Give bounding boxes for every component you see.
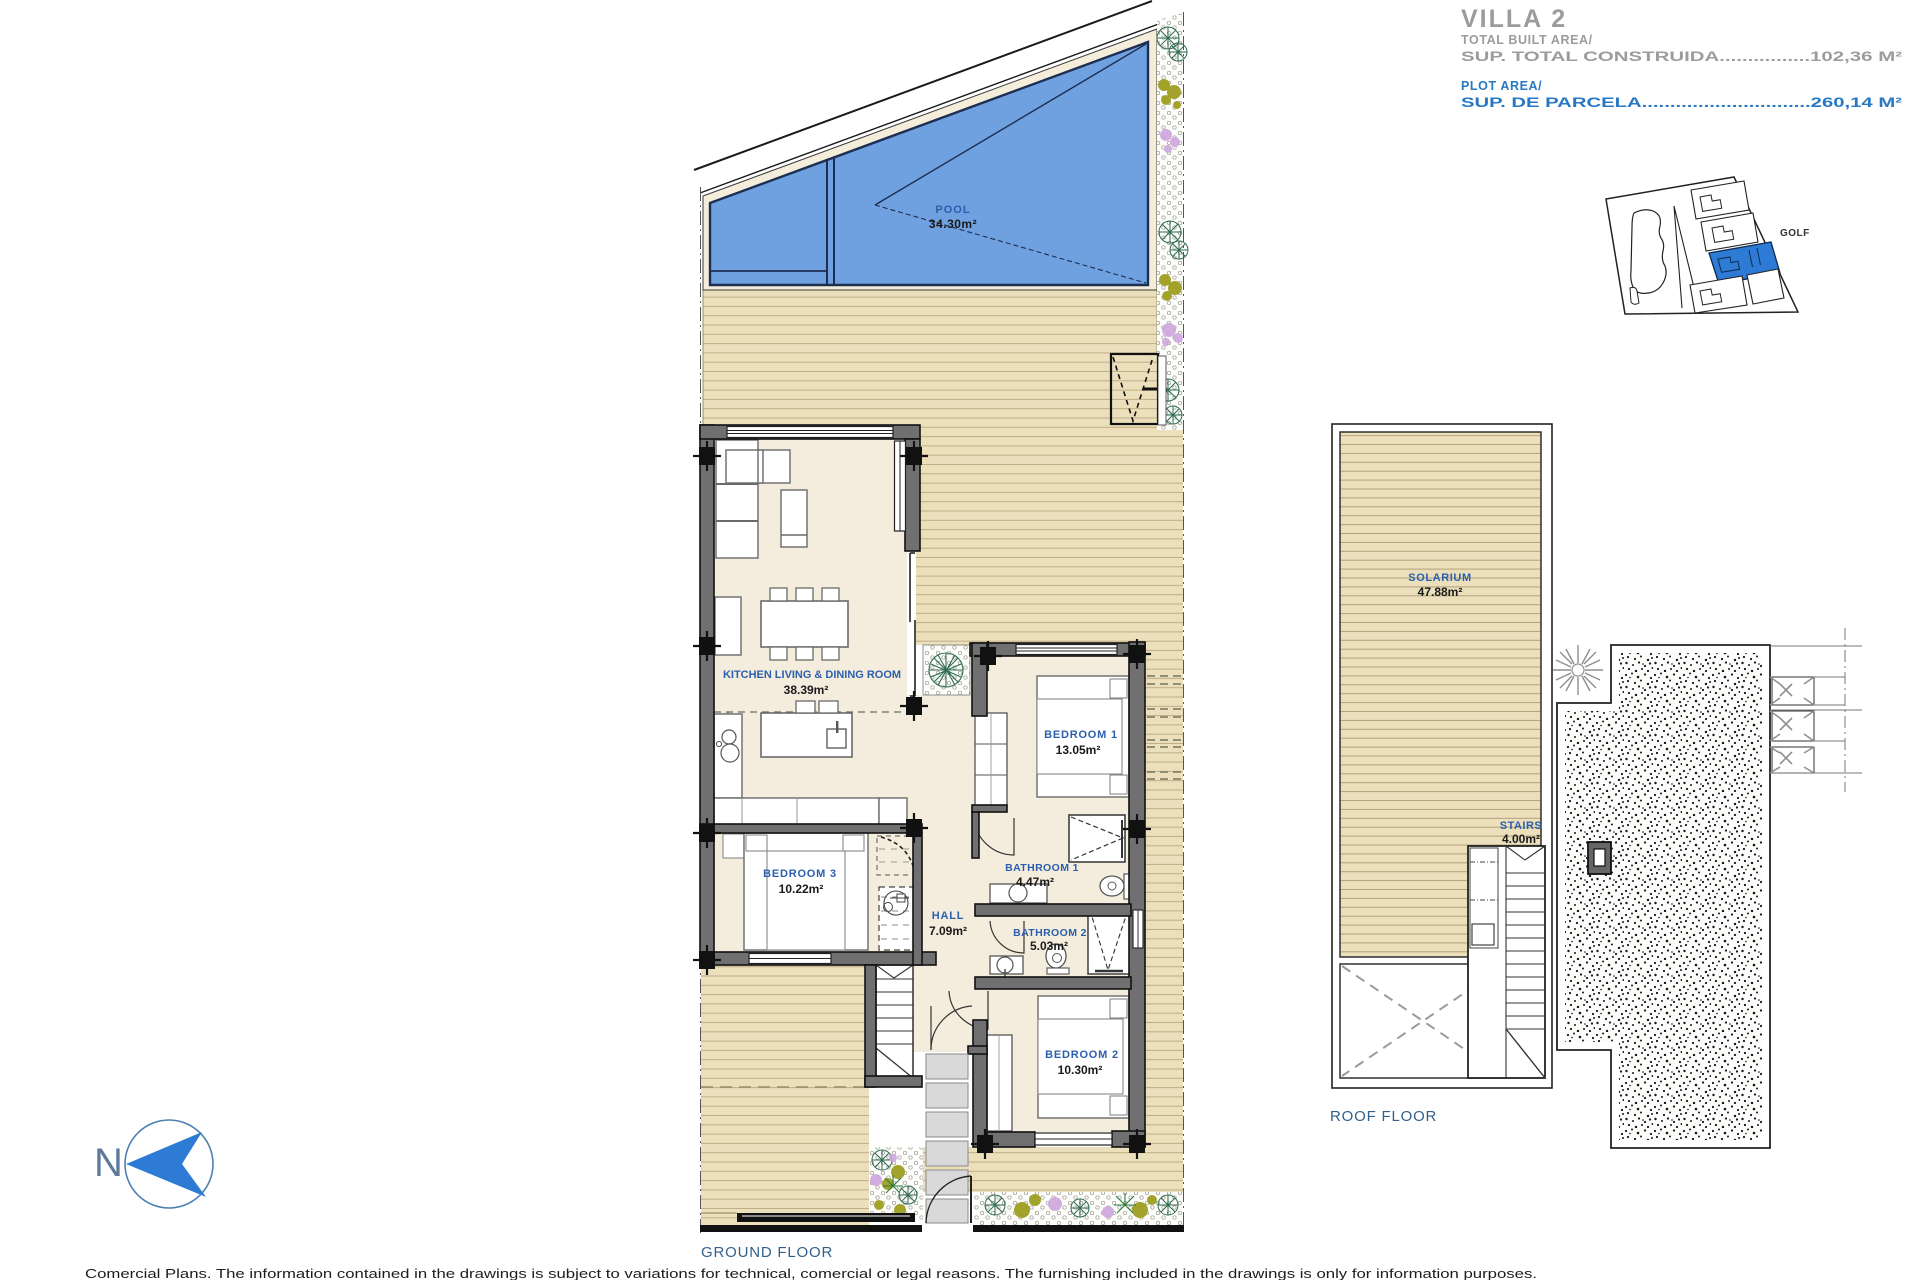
- svg-text:SOLARIUM: SOLARIUM: [1408, 572, 1471, 584]
- svg-text:Comercial Plans. The inform: Comercial Plans. The information contain…: [85, 1266, 1537, 1280]
- svg-text:10.30m²: 10.30m²: [1058, 1063, 1103, 1077]
- svg-text:GOLF: GOLF: [1780, 228, 1810, 239]
- svg-text:N: N: [94, 1141, 123, 1185]
- svg-text:TOTAL BUILT AREA/: TOTAL BUILT AREA/: [1461, 33, 1593, 47]
- svg-text:KITCHEN LIVING & DINING R: KITCHEN LIVING & DINING ROOM: [723, 669, 901, 681]
- svg-text:BATHROOM 1: BATHROOM 1: [1005, 862, 1079, 874]
- svg-text:BEDROOM 2: BEDROOM 2: [1045, 1049, 1119, 1061]
- svg-text:SUP. DE PARCELA...............: SUP. DE PARCELA.........................…: [1461, 95, 1903, 110]
- svg-text:BEDROOM 3: BEDROOM 3: [763, 868, 837, 880]
- svg-text:BEDROOM 1: BEDROOM 1: [1044, 729, 1118, 741]
- svg-text:VILLA 2: VILLA 2: [1461, 5, 1567, 33]
- svg-text:10.22m²: 10.22m²: [779, 882, 824, 896]
- svg-text:5.03m²: 5.03m²: [1030, 939, 1068, 953]
- svg-text:13.05m²: 13.05m²: [1056, 743, 1101, 757]
- svg-text:38.39m²: 38.39m²: [784, 683, 829, 697]
- svg-text:4.47m²: 4.47m²: [1016, 875, 1054, 889]
- svg-text:GROUND FLOOR: GROUND FLOOR: [701, 1244, 833, 1261]
- svg-text:PLOT AREA/: PLOT AREA/: [1461, 79, 1542, 93]
- svg-text:POOL: POOL: [935, 204, 970, 216]
- svg-text:HALL: HALL: [932, 910, 965, 922]
- svg-text:7.09m²: 7.09m²: [929, 924, 967, 938]
- svg-text:34.30m²: 34.30m²: [929, 217, 977, 231]
- svg-text:STAIRS: STAIRS: [1500, 820, 1543, 832]
- svg-text:4.00m²: 4.00m²: [1502, 832, 1540, 846]
- svg-text:47.88m²: 47.88m²: [1418, 585, 1463, 599]
- svg-text:ROOF FLOOR: ROOF FLOOR: [1330, 1108, 1437, 1125]
- svg-text:SUP. TOTAL CONSTRUIDA.........: SUP. TOTAL CONSTRUIDA................102…: [1461, 49, 1903, 64]
- svg-text:BATHROOM 2: BATHROOM 2: [1013, 927, 1087, 939]
